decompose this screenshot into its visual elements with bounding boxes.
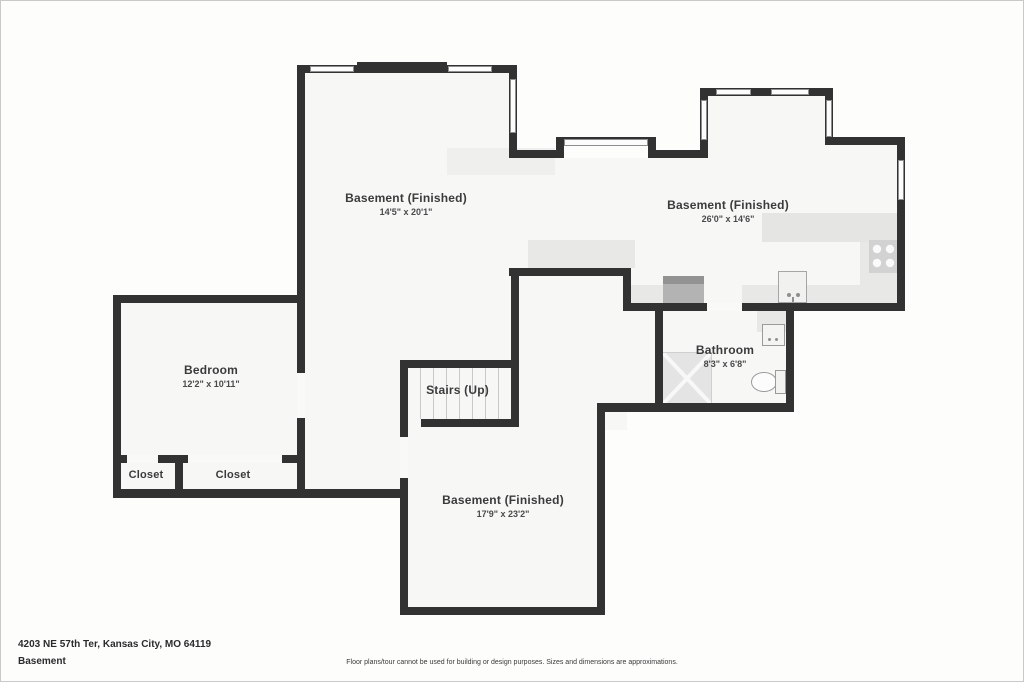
door-opening-stairs xyxy=(408,419,421,427)
door-opening-closet-left xyxy=(127,455,158,463)
door-opening-basement-s xyxy=(400,437,408,478)
bar-counter xyxy=(528,240,635,268)
room-basement-ne-bay xyxy=(708,96,825,158)
window xyxy=(771,89,809,95)
room-basement-nw xyxy=(301,69,513,368)
window xyxy=(510,79,516,133)
window xyxy=(716,89,751,95)
wall xyxy=(400,360,519,368)
property-address: 4203 NE 57th Ter, Kansas City, MO 64119 xyxy=(18,639,211,650)
wall xyxy=(113,295,305,303)
wall xyxy=(113,295,121,498)
room-label-closet-right: Closet xyxy=(183,469,283,483)
wall xyxy=(509,268,631,276)
wall xyxy=(597,403,794,412)
window xyxy=(701,100,707,140)
wall xyxy=(623,303,707,311)
wall xyxy=(786,311,794,411)
window xyxy=(564,139,648,146)
wall xyxy=(297,65,305,373)
disclaimer-text: Floor plans/tour cannot be used for buil… xyxy=(0,659,1024,666)
room-hall-strip xyxy=(305,364,404,490)
wall xyxy=(421,419,519,427)
toilet-icon xyxy=(751,372,777,392)
wall xyxy=(556,137,564,158)
wall-beam xyxy=(357,62,447,73)
room-basement-ne-step xyxy=(825,145,901,165)
room-label-bedroom: Bedroom 12'2" x 10'11" xyxy=(111,363,311,390)
wall xyxy=(655,311,663,411)
window xyxy=(448,66,492,72)
kitchen-sink-icon xyxy=(778,271,807,303)
floor-plan-page: Basement (Finished) 14'5" x 20'1" Baseme… xyxy=(0,0,1024,682)
wall xyxy=(623,268,631,311)
room-label-basement-s: Basement (Finished) 17'9" x 23'2" xyxy=(398,493,608,520)
wall xyxy=(400,360,408,437)
wall xyxy=(282,455,305,463)
wall xyxy=(825,137,905,145)
door-opening-closet-right xyxy=(188,455,282,463)
toilet-tank xyxy=(775,370,786,394)
wall xyxy=(511,268,519,427)
wall xyxy=(158,455,188,463)
room-label-stairs: Stairs (Up) xyxy=(404,383,511,398)
stove-icon xyxy=(869,240,898,273)
wall xyxy=(400,607,605,615)
room-label-basement-nw: Basement (Finished) 14'5" x 20'1" xyxy=(300,191,512,218)
window xyxy=(898,160,904,200)
door-opening-bathroom xyxy=(707,303,742,311)
room-label-closet-left: Closet xyxy=(117,469,175,483)
room-label-basement-ne: Basement (Finished) 26'0" x 14'6" xyxy=(618,198,838,225)
wall xyxy=(742,303,905,311)
window xyxy=(310,66,354,72)
appliance-icon xyxy=(663,276,704,303)
wall xyxy=(113,489,408,498)
room-label-bathroom: Bathroom 8'3" x 6'8" xyxy=(663,343,787,370)
window xyxy=(826,100,832,137)
wall xyxy=(113,455,127,463)
wall xyxy=(648,150,708,158)
